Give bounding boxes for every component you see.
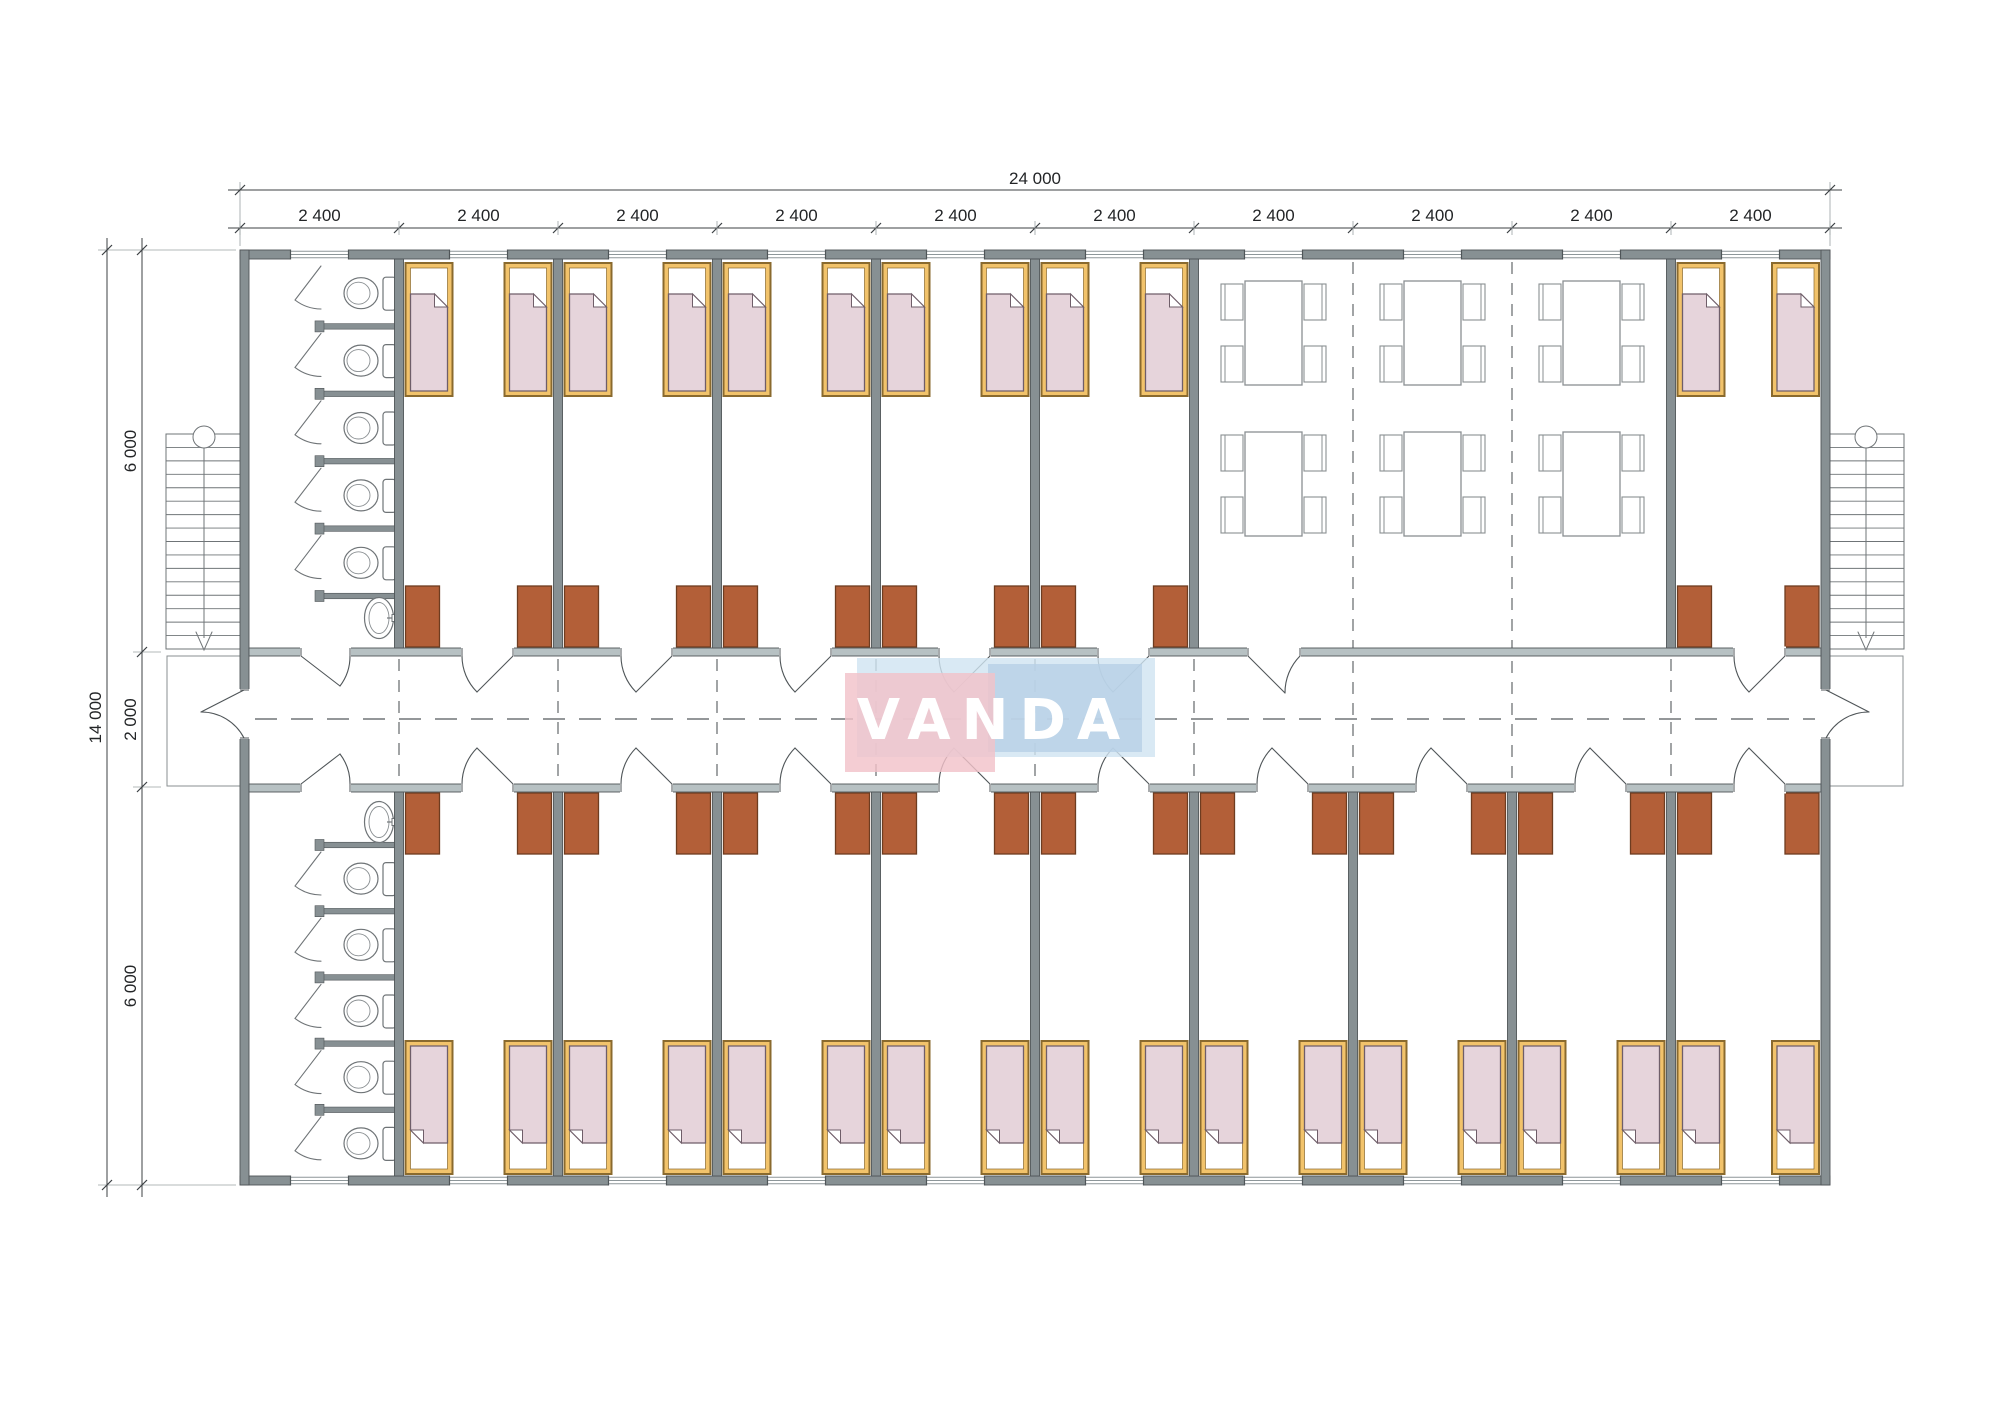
toilet-icon [344,547,396,580]
dining-area [1221,281,1644,536]
bed [406,263,453,396]
sink-icon [365,802,399,843]
stall-door-swing [295,984,321,1027]
bedroom-bottom [1519,793,1665,1174]
window [1563,250,1621,260]
toilet-icon [344,929,396,962]
dim-module-width: 2 400 [457,206,500,225]
dim-overall-width: 24 000 [1009,169,1061,188]
bedroom-bottom [565,793,711,1174]
toilet-icon [344,412,396,445]
wardrobe [724,793,758,854]
bed [664,263,711,396]
bed [505,1041,552,1174]
wardrobe [677,586,711,647]
chair [1463,435,1485,471]
bed [565,263,612,396]
window [768,250,826,260]
dim-module-width: 2 400 [1729,206,1772,225]
wardrobe [518,793,552,854]
chair [1622,346,1644,382]
bed [823,263,870,396]
bed [883,263,930,396]
bed [1042,1041,1089,1174]
stall-door-swing [295,401,321,444]
wardrobe [1631,793,1665,854]
window [927,1176,985,1186]
bed [883,1041,930,1174]
door-swing [621,656,672,692]
bed [1459,1041,1506,1174]
door-swing [780,656,831,692]
wardrobe [677,793,711,854]
chair [1622,284,1644,320]
wardrobe [1042,586,1076,647]
door-swing [1257,748,1308,784]
wardrobe [1201,793,1235,854]
bed [1678,263,1725,396]
stall-door-swing [295,852,321,895]
wardrobe [995,586,1029,647]
chair [1463,284,1485,320]
door-swing [340,656,350,686]
chair [1463,497,1485,533]
wardrobe [1042,793,1076,854]
stall-door-swing [295,1051,321,1094]
window [768,1176,826,1186]
bedroom-bottom [883,793,1029,1174]
wardrobe [836,586,870,647]
chair [1380,497,1402,533]
wardrobe [565,793,599,854]
stall-door-swing [295,1117,321,1160]
bedroom-top [1678,263,1820,647]
stair-start-circle [193,426,215,448]
wardrobe [1154,793,1188,854]
chair [1304,346,1326,382]
bedroom-top [883,263,1029,647]
bedroom-bottom [1360,793,1506,1174]
door-swing [1248,656,1300,693]
wardrobe [406,586,440,647]
stall-door-swing [295,266,321,309]
bed [823,1041,870,1174]
sink-icon [365,598,399,639]
window [1404,1176,1462,1186]
bed [1772,263,1819,396]
chair [1380,435,1402,471]
chair [1304,497,1326,533]
chair [1539,346,1561,382]
wardrobe [1785,586,1819,647]
door-swing [462,656,513,692]
wardrobe [883,586,917,647]
bed [565,1041,612,1174]
window [291,250,349,260]
chair [1380,284,1402,320]
door-swing [621,748,672,784]
door-swing [301,754,340,784]
door-swing [462,748,513,784]
door-swing [1098,656,1149,692]
toilet-icon [344,345,396,378]
wardrobe [1785,793,1819,854]
wardrobe [565,586,599,647]
window [291,1176,349,1186]
bed [1772,1041,1819,1174]
stall-door-swing [295,468,321,511]
chair [1380,346,1402,382]
chair [1221,497,1243,533]
dim-module-width: 2 400 [934,206,977,225]
window [450,250,508,260]
floor-plan-drawing: 24 0002 4002 4002 4002 4002 4002 4002 40… [0,0,2000,1415]
bathroom-top [295,266,399,639]
dim-height-segment: 2 000 [121,698,140,741]
bedroom-bottom [1201,793,1347,1174]
dining-table [1380,432,1485,536]
door-swing [1734,656,1785,692]
dim-height-segment: 6 000 [121,430,140,473]
dim-height-segment: 6 000 [121,965,140,1008]
chair [1539,435,1561,471]
stair-start-circle [1855,426,1877,448]
dim-module-width: 2 400 [1093,206,1136,225]
dim-module-width: 2 400 [1570,206,1613,225]
door-swing [301,656,340,686]
toilet-icon [344,479,396,512]
wardrobe [518,586,552,647]
bedroom-top [1042,263,1188,647]
floor-plan-page: 24 0002 4002 4002 4002 4002 4002 4002 40… [0,0,2000,1415]
chair [1304,284,1326,320]
bed [1618,1041,1665,1174]
door-swing [340,754,350,784]
bedroom-top [724,263,870,647]
wardrobe [1472,793,1506,854]
bedroom-bottom [1042,793,1188,1174]
chair [1304,435,1326,471]
wardrobe [1678,586,1712,647]
bed [664,1041,711,1174]
stall-door-swing [295,918,321,961]
bed [1141,1041,1188,1174]
bed [1678,1041,1725,1174]
toilet-icon [344,1127,396,1160]
dim-module-width: 2 400 [616,206,659,225]
door-swing [780,748,831,784]
dim-module-width: 2 400 [775,206,818,225]
window [1245,250,1303,260]
chair [1622,497,1644,533]
wardrobe [836,793,870,854]
door-swing [939,748,990,784]
wardrobe [406,793,440,854]
chair [1221,284,1243,320]
door-swing [1098,748,1149,784]
chair [1539,497,1561,533]
window [1086,1176,1144,1186]
stall-door-swing [295,333,321,376]
window [1563,1176,1621,1186]
bed [1360,1041,1407,1174]
wardrobe [995,793,1029,854]
stall-door-swing [295,536,321,579]
bed [1519,1041,1566,1174]
door-swing [1416,748,1467,784]
bedroom-top [565,263,711,647]
bed [1141,263,1188,396]
toilet-icon [344,995,396,1028]
door-swing [1575,748,1626,784]
window [450,1176,508,1186]
toilet-icon [344,1061,396,1094]
bed [1042,263,1089,396]
window [609,250,667,260]
wardrobe [1154,586,1188,647]
stair-left [166,426,242,650]
dim-module-width: 2 400 [1252,206,1295,225]
wardrobe [883,793,917,854]
bed [724,1041,771,1174]
bed [982,1041,1029,1174]
stair-right [1828,426,1904,650]
dining-table [1221,281,1326,385]
door-swing [1734,748,1785,784]
chair [1463,346,1485,382]
chair [1221,346,1243,382]
window [1722,1176,1780,1186]
bed [406,1041,453,1174]
bathroom-bottom [295,802,399,1161]
bed [1300,1041,1347,1174]
bedroom-bottom [1678,793,1820,1174]
chair [1221,435,1243,471]
chair [1539,284,1561,320]
dim-overall-height: 14 000 [86,692,105,744]
window [1086,250,1144,260]
walls [240,250,1830,1185]
door-swing [939,656,990,692]
dim-module-width: 2 400 [298,206,341,225]
dining-table [1221,432,1326,536]
dim-module-width: 2 400 [1411,206,1454,225]
wardrobe [1313,793,1347,854]
bed [724,263,771,396]
bedroom-bottom [724,793,870,1174]
bed [505,263,552,396]
window [927,250,985,260]
wardrobe [1678,793,1712,854]
window [1404,250,1462,260]
window [609,1176,667,1186]
chair [1622,435,1644,471]
wardrobe [724,586,758,647]
dining-table [1539,432,1644,536]
dining-table [1380,281,1485,385]
toilet-icon [344,277,396,310]
window [1245,1176,1303,1186]
toilet-icon [344,863,396,896]
bedroom-top [406,263,552,647]
window [1722,250,1780,260]
wardrobe [1360,793,1394,854]
bed [982,263,1029,396]
dining-table [1539,281,1644,385]
bed [1201,1041,1248,1174]
wardrobe [1519,793,1553,854]
bedroom-bottom [406,793,552,1174]
